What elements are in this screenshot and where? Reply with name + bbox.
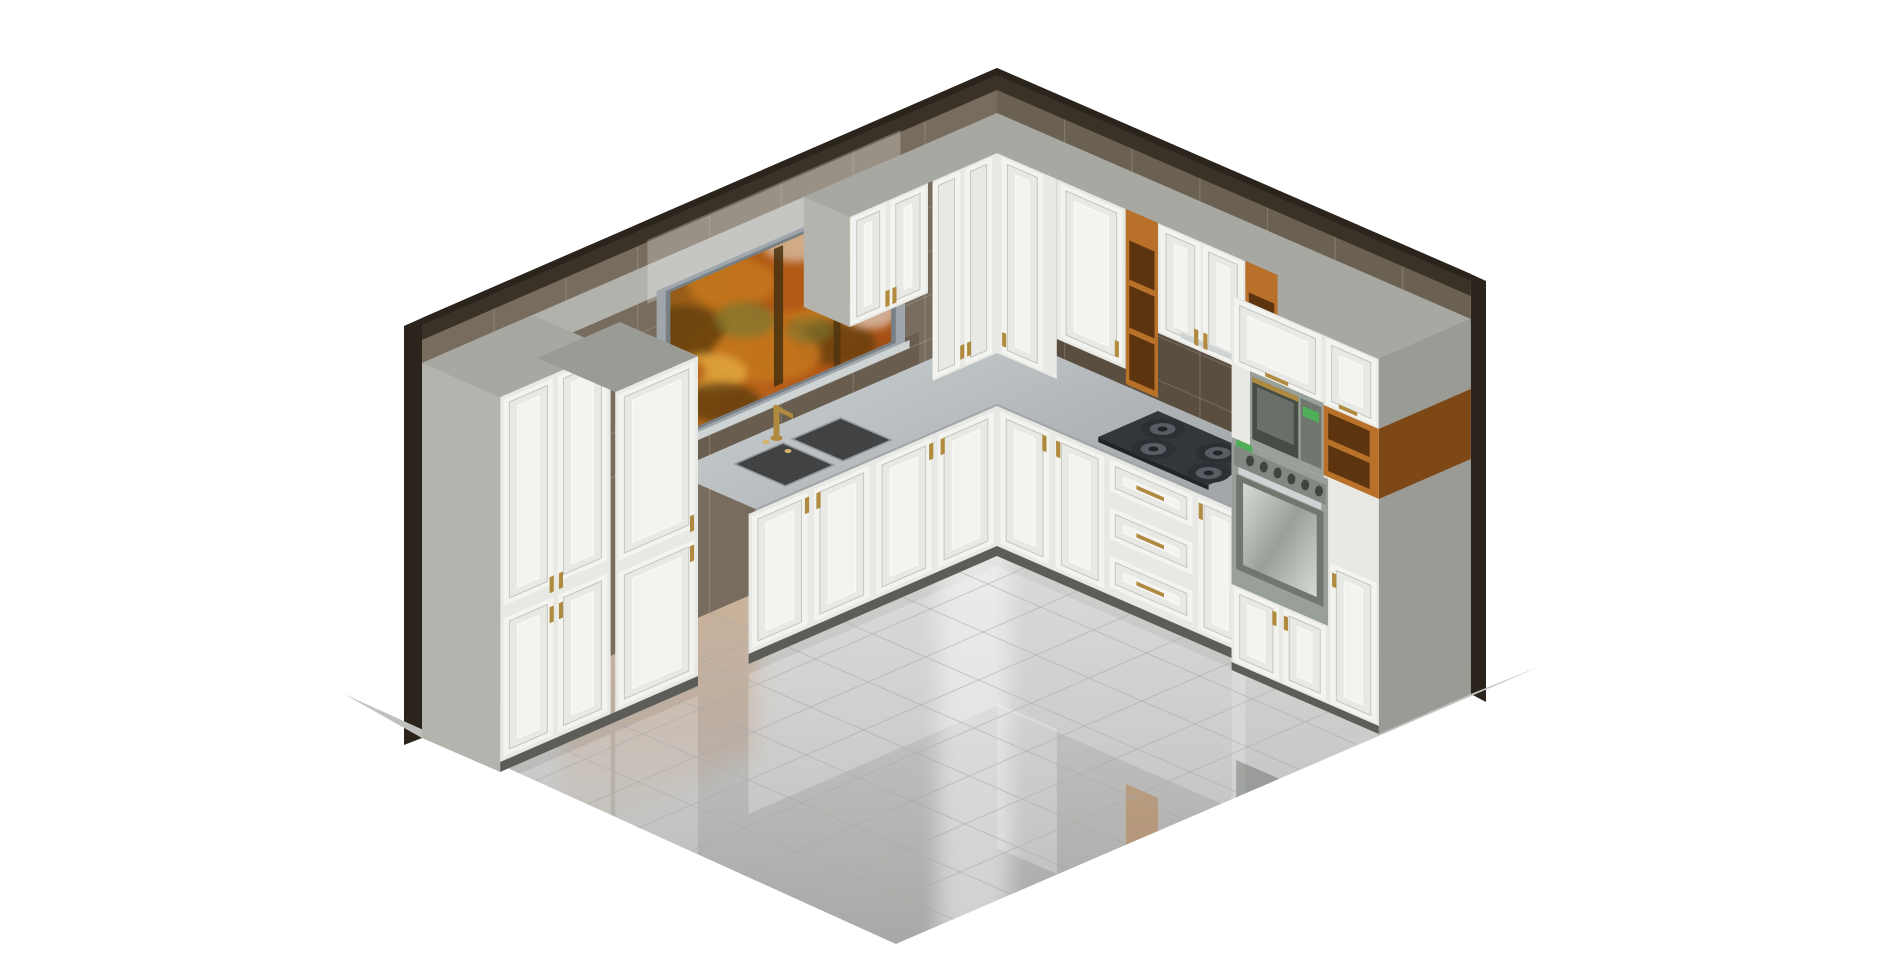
base-cabinet-door [938, 412, 993, 568]
door-handle [941, 438, 945, 456]
door-panel [633, 558, 681, 689]
wall-cabinet-door [1060, 184, 1122, 365]
door-handle [1042, 435, 1046, 453]
base-cabinet-door [1056, 436, 1104, 589]
burner-cap [1204, 471, 1214, 476]
door-handle [559, 602, 563, 620]
corner-cabinet-door [933, 171, 961, 379]
burner-cap [1213, 451, 1223, 456]
door-panel [518, 396, 540, 588]
burner-cap [1158, 427, 1168, 432]
wood-shelf-opening [1129, 241, 1154, 391]
wall-cabinet-side [804, 197, 850, 327]
base-cabinet-door [1331, 563, 1377, 723]
door-panel [572, 373, 594, 565]
pantry-side-panel [422, 363, 500, 772]
door-handle [892, 287, 896, 305]
scene-root [344, 68, 1541, 971]
faucet [774, 405, 780, 437]
oven-knob [1246, 456, 1254, 467]
door-handle [816, 492, 820, 510]
door-panel [572, 592, 594, 716]
door-handle [1056, 441, 1060, 459]
corner-cabinet-door [965, 157, 993, 365]
door-handle [1203, 333, 1207, 351]
door-handle [690, 515, 694, 533]
faucet-knob [785, 449, 792, 453]
wood-shelf-reflection [1245, 836, 1277, 950]
base-cabinet-door [1000, 412, 1048, 565]
door-panel [1344, 581, 1362, 705]
door-panel [633, 380, 681, 543]
door-handle [690, 545, 694, 563]
tall-cabinet-door [619, 362, 695, 561]
door-panel [828, 484, 856, 604]
door-handle [1194, 329, 1198, 347]
door-panel [1297, 627, 1312, 684]
door-handle [1272, 611, 1276, 627]
oven-knob [1301, 480, 1309, 491]
door-panel [938, 179, 954, 372]
door-panel [952, 430, 980, 550]
door-handle [550, 606, 554, 624]
door-panel [766, 511, 794, 631]
door-handle [1199, 503, 1203, 521]
door-handle [550, 576, 554, 594]
door-panel [904, 204, 912, 290]
door-panel [971, 165, 987, 358]
door-panel [865, 222, 872, 307]
cabinet-reflection [615, 696, 698, 971]
oven-reflection [1236, 760, 1328, 908]
door-handle [929, 443, 933, 461]
tower-side-panel [1379, 319, 1471, 734]
oven-knob [1260, 462, 1268, 473]
door-panel [1174, 244, 1187, 332]
pantry-door [504, 597, 553, 757]
door-handle [805, 497, 809, 515]
oven-knob [1315, 486, 1323, 497]
door-panel [1217, 263, 1230, 351]
door-handle [559, 572, 563, 590]
right-wall-end-edge [1471, 274, 1486, 702]
door-panel [1015, 175, 1029, 353]
faucet-knob [763, 440, 770, 444]
door-handle [1284, 616, 1288, 632]
kitchen-3d-render [0, 0, 1883, 971]
pantry-door [558, 574, 608, 734]
door-panel [518, 615, 540, 739]
wall-cabinet-door [851, 204, 886, 325]
burner-cap [1148, 447, 1158, 452]
door-panel [1212, 516, 1228, 631]
door-panel [1074, 202, 1109, 347]
door-panel [1248, 605, 1265, 663]
door-handle [960, 344, 964, 360]
corner-cabinet-door [1002, 157, 1043, 371]
base-cabinet-door [876, 439, 931, 595]
door-handle [1002, 332, 1006, 348]
foliage-blob [786, 316, 834, 344]
left-wall-end-edge [404, 318, 422, 745]
oven-knob [1274, 468, 1282, 479]
door-panel [1014, 430, 1035, 547]
pantry-door [558, 355, 608, 583]
door-handle [885, 290, 889, 308]
oven-knob [1287, 474, 1295, 485]
door-handle [1115, 340, 1119, 358]
door-panel [890, 457, 918, 577]
door-handle [967, 341, 971, 357]
tree-trunk [774, 245, 783, 387]
base-cabinet-door [814, 466, 869, 622]
pantry-door [504, 378, 553, 606]
foliage-blob [715, 302, 775, 338]
door-panel [1069, 454, 1090, 571]
kitchen-3d-render-stage [0, 0, 1883, 971]
door-handle [1332, 573, 1336, 589]
base-cabinet-door [752, 493, 807, 649]
